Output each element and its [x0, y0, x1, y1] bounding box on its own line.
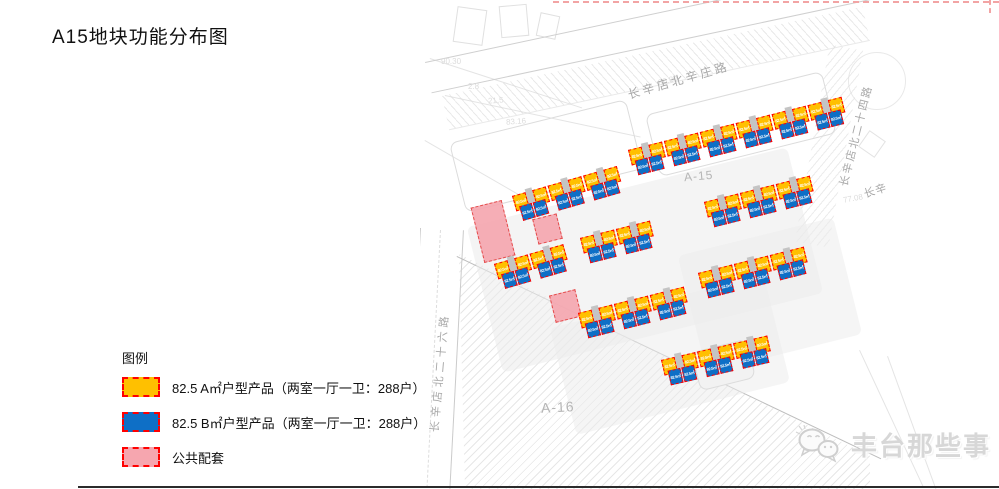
watermark: 丰台那些事 [795, 424, 991, 464]
elevation-mark: 21.5 [488, 95, 504, 105]
building-cluster: 82.5㎡82.5㎡82.5㎡82.5㎡ [616, 221, 656, 256]
elevation-mark: 77.08 [842, 192, 863, 204]
public-facility-area [532, 213, 563, 244]
building-cluster: 82.5㎡82.5㎡82.5㎡82.5㎡ [772, 106, 812, 141]
building-cluster: 82.5㎡82.5㎡82.5㎡82.5㎡ [583, 166, 624, 202]
unit-strip-b: 82.5㎡82.5㎡ [705, 360, 734, 377]
legend: 图例 82.5 A㎡户型产品（两室一厅一卫：288户） 82.5 B㎡户型产品（… [122, 348, 426, 482]
building-cluster: 82.5㎡82.5㎡82.5㎡82.5㎡ [614, 296, 654, 331]
unit-strip-b: 82.5㎡82.5㎡ [591, 182, 620, 200]
unit-strip-b: 82.5㎡82.5㎡ [502, 271, 531, 289]
page-title: A15地块功能分布图 [52, 22, 229, 49]
legend-item-label: 82.5 A㎡户型产品（两室一厅一卫：288户） [172, 378, 426, 397]
building-row: 82.5㎡82.5㎡82.5㎡82.5㎡82.5㎡82.5㎡82.5㎡82.5㎡ [580, 221, 656, 265]
unit-strip-b: 82.5㎡82.5㎡ [712, 210, 741, 227]
building-row: 82.5㎡82.5㎡82.5㎡82.5㎡82.5㎡82.5㎡82.5㎡82.5㎡… [698, 247, 810, 300]
building-cluster: 82.5㎡82.5㎡82.5㎡82.5㎡ [734, 256, 774, 291]
wechat-bubbles-icon [795, 424, 843, 464]
unit-strip-b: 82.5㎡82.5㎡ [636, 158, 665, 175]
unit-strip-b: 82.5㎡82.5㎡ [742, 272, 771, 289]
unit-strip-b: 82.5㎡82.5㎡ [586, 321, 615, 338]
contour-line [887, 356, 943, 489]
site-map: 82.5㎡82.5㎡82.5㎡82.5㎡82.5㎡82.5㎡82.5㎡82.5㎡… [420, 0, 999, 489]
building-cluster: 82.5㎡82.5㎡82.5㎡82.5㎡ [698, 265, 738, 300]
public-facility-area [549, 289, 582, 323]
building-cluster: 82.5㎡82.5㎡82.5㎡82.5㎡ [661, 352, 701, 386]
elevation-mark: 2.8 [468, 82, 479, 91]
unit-strip-b: 82.5㎡82.5㎡ [784, 192, 813, 209]
watermark-text: 丰台那些事 [851, 426, 991, 463]
unit-strip-b: 82.5㎡82.5㎡ [748, 201, 777, 218]
contour-line [425, 140, 529, 201]
building-cluster: 82.5㎡82.5㎡82.5㎡82.5㎡ [628, 142, 668, 177]
unit-strip-b: 82.5㎡82.5㎡ [556, 193, 585, 211]
plot-label: A-16 [541, 398, 575, 416]
building-cluster: 82.5㎡82.5㎡82.5㎡82.5㎡ [740, 185, 780, 220]
unit-strip-b: 82.5㎡82.5㎡ [658, 303, 687, 320]
building-row: 82.5㎡82.5㎡82.5㎡82.5㎡82.5㎡82.5㎡82.5㎡82.5㎡… [661, 335, 773, 386]
unit-strip-b: 82.5㎡82.5㎡ [622, 312, 651, 329]
public-facility-area [471, 200, 516, 263]
building-row: 82.5㎡82.5㎡82.5㎡82.5㎡82.5㎡82.5㎡82.5㎡82.5㎡… [578, 287, 690, 340]
legend-item-unit-a: 82.5 A㎡户型产品（两室一厅一卫：288户） [122, 377, 426, 397]
unit-strip-b: 82.5㎡82.5㎡ [743, 131, 772, 148]
slide: A15地块功能分布图 图例 82.5 A㎡户型产品（两室一厅一卫：288户） 8… [0, 0, 999, 489]
legend-item-public: 公共配套 [122, 447, 426, 467]
bottom-divider [78, 486, 999, 488]
building-cluster: 82.5㎡82.5㎡82.5㎡82.5㎡ [664, 133, 704, 168]
unit-strip-b: 82.5㎡82.5㎡ [778, 263, 807, 280]
building-cluster: 82.5㎡82.5㎡82.5㎡82.5㎡ [494, 254, 535, 290]
unit-strip-b: 82.5㎡82.5㎡ [624, 237, 653, 254]
building-row: 82.5㎡82.5㎡82.5㎡82.5㎡82.5㎡82.5㎡82.5㎡82.5㎡… [704, 176, 816, 229]
unit-strip-b: 82.5㎡82.5㎡ [588, 246, 617, 263]
road-label: 长辛店北二十六路 [426, 312, 452, 433]
building-cluster: 82.5㎡82.5㎡82.5㎡82.5㎡ [650, 287, 690, 322]
unit-strip-b: 82.5㎡82.5㎡ [706, 281, 735, 298]
red-dashed-boundary-top [553, 1, 999, 3]
contour-line [445, 95, 641, 138]
background-structure [453, 6, 488, 46]
building-cluster: 82.5㎡82.5㎡82.5㎡82.5㎡ [530, 244, 571, 280]
elevation-mark: 90.30 [441, 57, 461, 66]
unit-strip-b: 82.5㎡82.5㎡ [815, 113, 844, 130]
elevation-mark: 83.16 [506, 116, 527, 126]
building-cluster: 82.5㎡82.5㎡82.5㎡82.5㎡ [736, 115, 776, 150]
building-cluster: 82.5㎡82.5㎡82.5㎡82.5㎡ [704, 194, 744, 229]
road-label: 长辛店北辛庄路 [626, 57, 732, 102]
road-label: 长辛 [862, 179, 890, 202]
building-cluster: 82.5㎡82.5㎡82.5㎡82.5㎡ [808, 97, 848, 132]
building-row: 82.5㎡82.5㎡82.5㎡82.5㎡82.5㎡82.5㎡82.5㎡82.5㎡… [512, 166, 624, 222]
unit-b-swatch [122, 412, 160, 432]
building-cluster: 82.5㎡82.5㎡82.5㎡82.5㎡ [580, 230, 620, 265]
building-row: 82.5㎡82.5㎡82.5㎡82.5㎡82.5㎡82.5㎡82.5㎡82.5㎡… [628, 97, 848, 176]
red-dashed-boundary-right [989, 0, 991, 13]
legend-item-unit-b: 82.5 B㎡户型产品（两室一厅一卫：288户） [122, 412, 426, 432]
legend-item-label: 82.5 B㎡户型产品（两室一厅一卫：288户） [172, 413, 426, 432]
legend-item-label: 公共配套 [172, 448, 224, 467]
public-swatch [122, 447, 160, 467]
legend-heading: 图例 [122, 348, 426, 367]
building-cluster: 82.5㎡82.5㎡82.5㎡82.5㎡ [733, 335, 773, 369]
unit-strip-b: 82.5㎡82.5㎡ [538, 261, 567, 279]
building-cluster: 82.5㎡82.5㎡82.5㎡82.5㎡ [578, 305, 618, 340]
unit-strip-b: 82.5㎡82.5㎡ [668, 369, 697, 386]
building-cluster: 82.5㎡82.5㎡82.5㎡82.5㎡ [776, 176, 816, 211]
background-structure [499, 4, 530, 38]
unit-strip-b: 82.5㎡82.5㎡ [741, 352, 770, 369]
unit-strip-b: 82.5㎡82.5㎡ [708, 140, 737, 157]
plot-label: A-15 [683, 168, 713, 185]
unit-a-swatch [122, 377, 160, 397]
unit-strip-b: 82.5㎡82.5㎡ [672, 149, 701, 166]
building-cluster: 82.5㎡82.5㎡82.5㎡82.5㎡ [548, 176, 589, 212]
unit-strip-b: 82.5㎡82.5㎡ [779, 122, 808, 139]
contour-line [859, 350, 923, 486]
building-cluster: 82.5㎡82.5㎡82.5㎡82.5㎡ [700, 124, 740, 159]
background-structure [536, 12, 561, 40]
building-cluster: 82.5㎡82.5㎡82.5㎡82.5㎡ [770, 247, 810, 282]
building-cluster: 82.5㎡82.5㎡82.5㎡82.5㎡ [697, 344, 737, 378]
